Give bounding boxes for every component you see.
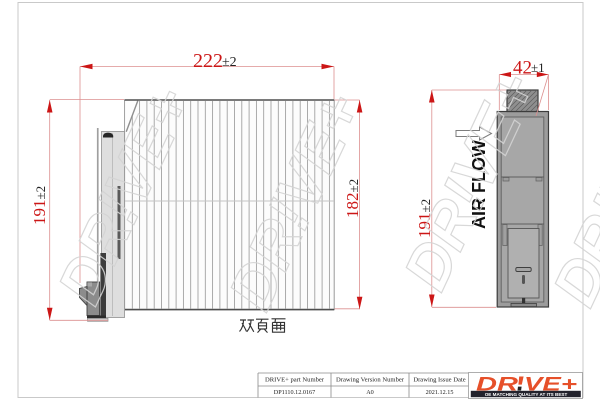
svg-text:±2: ±2 <box>222 55 237 70</box>
svg-text:DP1110.12.0167: DP1110.12.0167 <box>274 389 315 396</box>
svg-text:42: 42 <box>513 58 532 79</box>
svg-text:2021.12.15: 2021.12.15 <box>426 389 454 396</box>
svg-text:222: 222 <box>193 50 223 72</box>
svg-text:±1: ±1 <box>531 60 545 75</box>
svg-text:182±2: 182±2 <box>343 179 362 218</box>
svg-text:191±2: 191±2 <box>30 186 49 225</box>
svg-text:Drawing Version Number: Drawing Version Number <box>336 377 405 384</box>
svg-text:A0: A0 <box>366 389 374 396</box>
svg-text:OE MATCHING QUALITY AT ITS BES: OE MATCHING QUALITY AT ITS BEST <box>485 392 568 397</box>
svg-text:DRIVE+ part Number: DRIVE+ part Number <box>265 377 325 384</box>
svg-text:Drawing Issue Date: Drawing Issue Date <box>413 377 465 384</box>
